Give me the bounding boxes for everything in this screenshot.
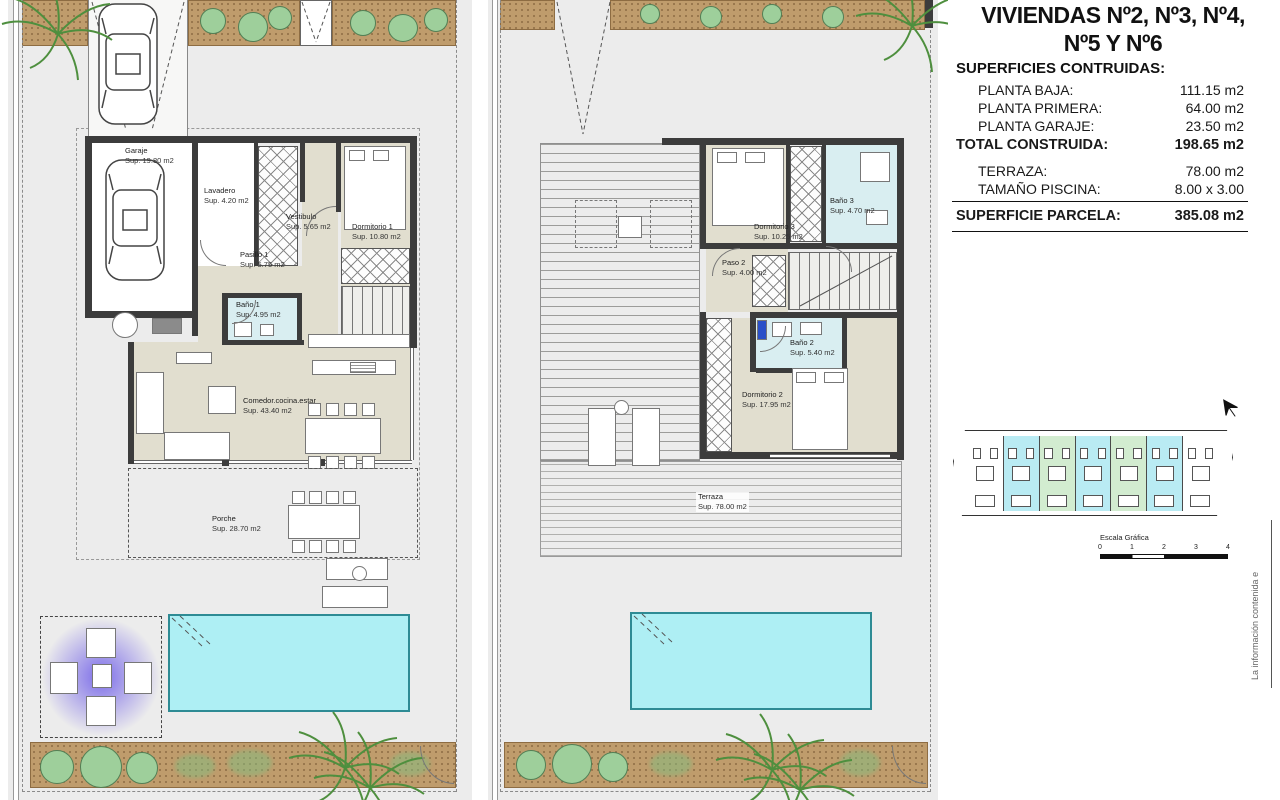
site-unit-4 bbox=[1076, 436, 1112, 511]
room-label-bano3: Baño 3Sup. 4.70 m2 bbox=[830, 196, 875, 216]
window-band bbox=[770, 454, 890, 458]
spec-row-total: TOTAL CONSTRUIDA:198.65 m2 bbox=[956, 137, 1244, 153]
grass-patch bbox=[840, 750, 880, 776]
bush bbox=[80, 746, 122, 788]
chair bbox=[343, 540, 356, 553]
bush bbox=[126, 752, 158, 784]
pergola-seat bbox=[86, 628, 116, 658]
porch-column bbox=[222, 459, 229, 466]
stair-closet-hatch bbox=[341, 248, 410, 284]
panel-title-line2: Nº5 Y Nº6 bbox=[948, 30, 1278, 57]
grass-patch bbox=[175, 754, 215, 778]
party-wall bbox=[492, 0, 498, 800]
bush bbox=[40, 750, 74, 784]
chair bbox=[343, 491, 356, 504]
car-outline-area bbox=[152, 318, 182, 334]
bush bbox=[268, 6, 292, 30]
scale-tick: 3 bbox=[1194, 544, 1198, 551]
site-unit-6 bbox=[1147, 436, 1183, 511]
staircase bbox=[341, 286, 410, 336]
bush bbox=[424, 8, 448, 32]
site-unit-2 bbox=[1004, 436, 1040, 511]
armchair bbox=[208, 386, 236, 414]
sun-lounger bbox=[588, 408, 616, 466]
pergola-center-table bbox=[618, 216, 642, 238]
pillow bbox=[717, 152, 737, 163]
spec-row-parcela: SUPERFICIE PARCELA:385.08 m2 bbox=[956, 208, 1244, 224]
parcel-boundary-left bbox=[500, 0, 501, 792]
grass-patch bbox=[228, 750, 272, 776]
party-wall bbox=[13, 0, 19, 800]
chair bbox=[326, 491, 339, 504]
site-plan-overview bbox=[953, 430, 1233, 516]
garden-strip-top bbox=[22, 0, 88, 46]
pergola-seat bbox=[86, 696, 116, 726]
spec-row-terraza: TERRAZA:78.00 m2 bbox=[978, 163, 1244, 179]
bush bbox=[552, 744, 592, 784]
pillow bbox=[745, 152, 765, 163]
divider-rule bbox=[952, 201, 1248, 202]
sofa bbox=[136, 372, 164, 434]
wardrobe-hatch bbox=[706, 318, 732, 452]
parcel-boundary-right bbox=[930, 0, 931, 792]
spec-row-planta-primera: PLANTA PRIMERA:64.00 m2 bbox=[978, 100, 1244, 116]
panel-title-line1: VIVIENDAS Nº2, Nº3, Nº4, bbox=[948, 2, 1278, 29]
parcel-boundary-bottom bbox=[22, 791, 456, 792]
pergola-seat bbox=[50, 662, 78, 694]
pillow bbox=[349, 150, 365, 161]
chair bbox=[362, 403, 375, 416]
swimming-pool bbox=[168, 614, 410, 712]
round-side-table bbox=[614, 400, 629, 415]
pergola-seat bbox=[124, 662, 152, 694]
chair bbox=[292, 540, 305, 553]
coffee-table bbox=[176, 352, 212, 364]
porch-outline bbox=[128, 468, 418, 558]
room-label-vestibulo: VestibuloSup. 5.65 m2 bbox=[286, 212, 331, 232]
parcel-boundary-bottom bbox=[500, 791, 930, 792]
bath-shower bbox=[860, 152, 890, 182]
spec-row-planta-garaje: PLANTA GARAJE:23.50 m2 bbox=[978, 118, 1244, 134]
sofa bbox=[164, 432, 230, 460]
room-label-pasillo1: Pasillo 1Sup. 5.75 m2 bbox=[240, 250, 285, 270]
bath-toilet bbox=[800, 322, 822, 335]
scale-tick: 4 bbox=[1226, 544, 1230, 551]
bush bbox=[350, 10, 376, 36]
scale-tick: 2 bbox=[1162, 544, 1166, 551]
chair bbox=[309, 540, 322, 553]
room-label-terraza: TerrazaSup. 78.00 m2 bbox=[696, 492, 749, 512]
bush bbox=[822, 6, 844, 28]
room-label-dormitorio2: Dormitorio 2Sup. 17.95 m2 bbox=[742, 390, 791, 410]
scale-tick: 0 bbox=[1098, 544, 1102, 551]
wall-corner bbox=[925, 0, 933, 28]
bath-sink bbox=[234, 322, 252, 337]
pillow bbox=[373, 150, 389, 161]
bush bbox=[238, 12, 268, 42]
dining-table bbox=[305, 418, 381, 454]
room-label-garaje: GarajeSup. 19.80 m2 bbox=[125, 146, 174, 166]
stove bbox=[350, 362, 376, 373]
chair bbox=[326, 403, 339, 416]
sun-lounger bbox=[632, 408, 660, 466]
round-side-table bbox=[352, 566, 367, 581]
driveway bbox=[88, 0, 188, 142]
side-note-vertical: La información contenida e bbox=[1250, 420, 1260, 680]
kitchen-counter bbox=[308, 334, 410, 348]
room-label-paso2: Paso 2Sup. 4.00 m2 bbox=[722, 258, 767, 278]
room-label-dormitorio1: Dormitorio 1Sup. 10.80 m2 bbox=[352, 222, 401, 242]
side-divider-line bbox=[1271, 520, 1272, 688]
spec-row-planta-baja: PLANTA BAJA:111.15 m2 bbox=[978, 82, 1244, 98]
closet-hatch bbox=[258, 146, 298, 266]
room-label-porche: PorcheSup. 28.70 m2 bbox=[212, 514, 261, 534]
pillow bbox=[824, 372, 844, 383]
bush bbox=[200, 8, 226, 34]
bush bbox=[516, 750, 546, 780]
bush bbox=[700, 6, 722, 28]
bush bbox=[598, 752, 628, 782]
scale-bar-title: Escala Gráfica bbox=[1100, 533, 1149, 542]
site-unit-7 bbox=[1183, 436, 1218, 511]
surfaces-heading: SUPERFICIES CONTRUIDAS: bbox=[956, 60, 1165, 77]
room-label-dormitorio3: Dormitorio 3Sup. 10.25 m2 bbox=[754, 222, 803, 242]
bath-toilet bbox=[260, 324, 274, 336]
spec-panel: VIVIENDAS Nº2, Nº3, Nº4, Nº5 Y Nº6 SUPER… bbox=[948, 0, 1280, 800]
room-label-bano2: Baño 2Sup. 5.40 m2 bbox=[790, 338, 835, 358]
pergola-table bbox=[92, 664, 112, 688]
swimming-pool bbox=[630, 612, 872, 710]
grass-patch bbox=[650, 752, 692, 776]
bush bbox=[640, 4, 660, 24]
chair bbox=[344, 403, 357, 416]
room-label-lavadero: LavaderoSup. 4.20 m2 bbox=[204, 186, 249, 206]
chair bbox=[292, 491, 305, 504]
room-garaje bbox=[92, 143, 192, 313]
room-label-comedor: Comedor.cocina.estarSup. 43.40 m2 bbox=[243, 396, 316, 416]
bush bbox=[388, 14, 418, 42]
scale-bar bbox=[1100, 554, 1228, 559]
chair bbox=[326, 540, 339, 553]
site-unit-1 bbox=[968, 436, 1004, 511]
parcel-boundary-left bbox=[456, 0, 457, 792]
site-unit-3 bbox=[1040, 436, 1076, 511]
pergola-table-group bbox=[650, 200, 692, 248]
porch-table bbox=[288, 505, 360, 539]
divider-rule bbox=[952, 231, 1248, 232]
window-band bbox=[410, 348, 414, 460]
entry-gate bbox=[300, 0, 332, 46]
pergola-table-group bbox=[575, 200, 617, 248]
round-table bbox=[112, 312, 138, 338]
chair bbox=[309, 491, 322, 504]
parcel-boundary-left bbox=[22, 0, 23, 792]
garden-strip-top bbox=[500, 0, 555, 30]
pillow bbox=[796, 372, 816, 383]
site-unit-5 bbox=[1111, 436, 1147, 511]
spec-row-piscina: TAMAÑO PISCINA:8.00 x 3.00 bbox=[978, 181, 1244, 197]
bush bbox=[762, 4, 782, 24]
room-label-bano1: Baño 1Sup. 4.95 m2 bbox=[236, 300, 281, 320]
scale-tick: 1 bbox=[1130, 544, 1134, 551]
sun-lounger bbox=[322, 586, 388, 608]
